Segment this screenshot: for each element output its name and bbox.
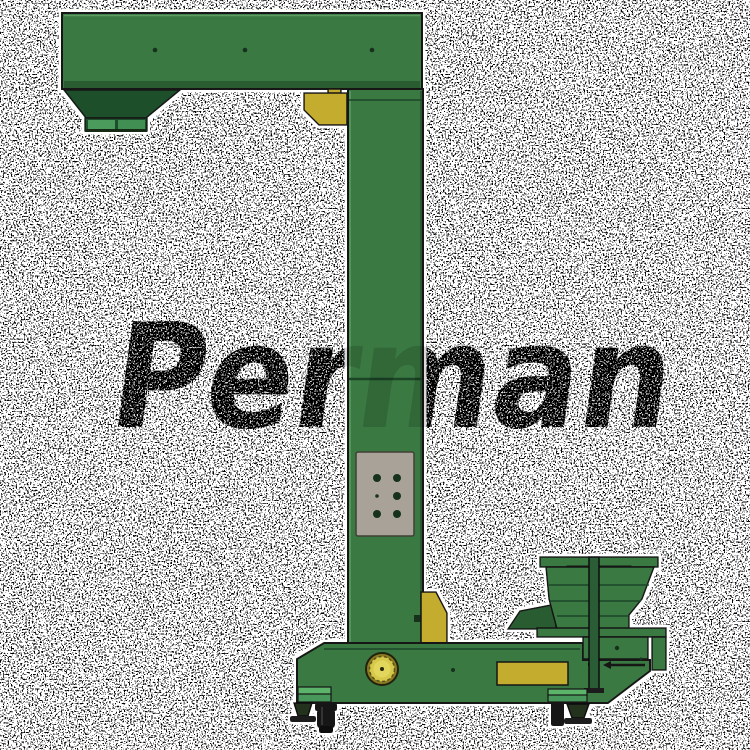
rivet — [243, 48, 248, 53]
foot-bracket — [298, 694, 331, 702]
foot-pad — [290, 716, 316, 722]
hopper-support-bar — [589, 557, 599, 690]
rivet — [153, 48, 158, 53]
panel-button — [373, 510, 381, 518]
feeder-end-plate — [652, 637, 666, 670]
right-foot-assembly — [548, 689, 592, 726]
caster-wheel — [551, 702, 564, 726]
arm-shadow-band — [64, 81, 420, 88]
panel-indicator — [375, 494, 379, 498]
foot-pad — [564, 718, 592, 724]
outlet-lip — [85, 129, 147, 132]
rivet — [615, 646, 619, 650]
panel-button — [393, 474, 401, 482]
rivet — [370, 48, 375, 53]
panel-button — [393, 492, 401, 500]
rivet — [451, 668, 455, 672]
panel-button — [373, 474, 381, 482]
outlet-cell — [88, 120, 115, 129]
base-yellow-plate — [497, 662, 568, 685]
leveling-foot — [294, 703, 312, 716]
caster-wheel — [317, 709, 335, 728]
product-image: Perman — [0, 0, 750, 750]
watermark-overlay — [101, 294, 685, 462]
foot-bracket — [548, 695, 587, 702]
top-discharge-arm — [62, 13, 422, 89]
control-panel — [356, 452, 414, 536]
outlet-cell — [118, 120, 145, 129]
caster-wheel — [319, 726, 333, 733]
rivet — [640, 658, 643, 661]
panel-button — [393, 510, 401, 518]
drive-motor — [366, 653, 398, 685]
hopper-base-plate — [537, 628, 666, 637]
